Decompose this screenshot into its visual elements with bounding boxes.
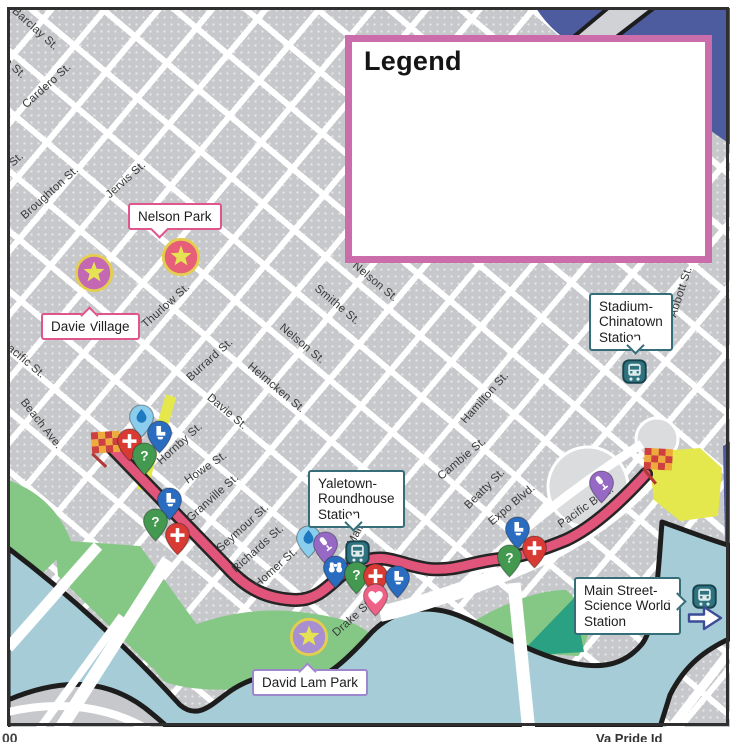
pride-parade-map-page: Barclay St.Robson St.Cardero St.Nicola S… — [0, 0, 738, 742]
margin-bottom — [0, 727, 738, 742]
margin-left — [0, 0, 8, 742]
legend-panel: Legend — [345, 35, 712, 263]
callout-main-street-science-world-station: Main Street- Science World Station — [574, 577, 681, 635]
callout-nelson-park: Nelson Park — [128, 203, 222, 230]
legend-title: Legend — [364, 46, 462, 77]
margin-right — [730, 0, 738, 742]
margin-top — [0, 0, 738, 8]
